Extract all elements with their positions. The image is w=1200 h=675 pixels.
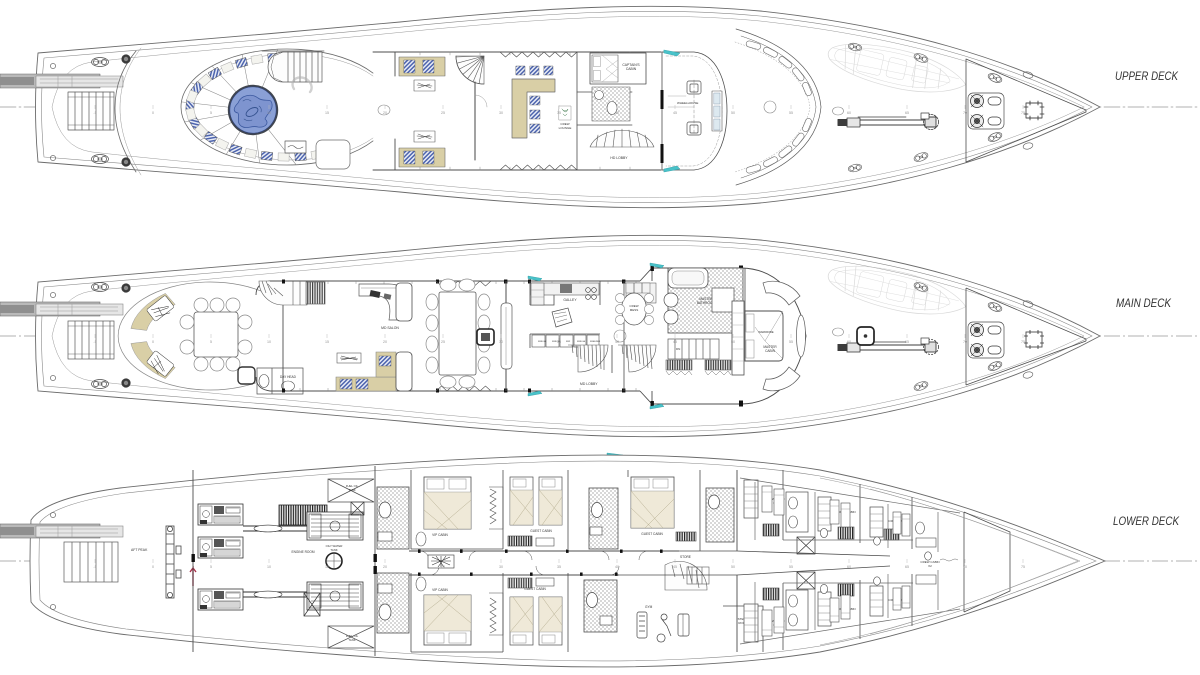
svg-text:WHEELHOUSE: WHEELHOUSE bbox=[677, 101, 698, 105]
svg-text:CABIN: CABIN bbox=[626, 67, 637, 71]
svg-text:50: 50 bbox=[731, 565, 735, 569]
svg-text:55: 55 bbox=[789, 565, 793, 569]
svg-text:10: 10 bbox=[267, 111, 271, 115]
svg-text:-5: -5 bbox=[93, 340, 96, 344]
svg-text:50: 50 bbox=[731, 111, 735, 115]
svg-text:VIP CABIN: VIP CABIN bbox=[432, 588, 448, 592]
svg-text:VIP CABIN: VIP CABIN bbox=[432, 533, 448, 537]
svg-text:35: 35 bbox=[557, 340, 561, 344]
svg-text:25: 25 bbox=[441, 340, 445, 344]
svg-text:45: 45 bbox=[673, 565, 677, 569]
svg-text:60: 60 bbox=[847, 340, 851, 344]
svg-text:FRZ: FRZ bbox=[566, 341, 571, 343]
svg-text:MD LOBBY: MD LOBBY bbox=[580, 382, 598, 386]
svg-text:LOWER DECK: LOWER DECK bbox=[1113, 514, 1180, 528]
svg-text:STORE: STORE bbox=[680, 555, 691, 559]
svg-text:30: 30 bbox=[499, 111, 503, 115]
svg-text:X2: X2 bbox=[928, 564, 932, 568]
svg-text:LOUNGE: LOUNGE bbox=[559, 126, 572, 130]
svg-text:25: 25 bbox=[441, 565, 445, 569]
svg-text:0: 0 bbox=[152, 111, 154, 115]
svg-text:70: 70 bbox=[963, 340, 967, 344]
svg-text:70: 70 bbox=[963, 565, 967, 569]
svg-text:TANK: TANK bbox=[348, 488, 355, 492]
svg-text:10: 10 bbox=[267, 340, 271, 344]
svg-text:MESS: MESS bbox=[630, 308, 639, 312]
svg-text:45: 45 bbox=[673, 111, 677, 115]
svg-text:35: 35 bbox=[557, 565, 561, 569]
svg-text:0: 0 bbox=[152, 340, 154, 344]
svg-text:75: 75 bbox=[1021, 111, 1025, 115]
svg-text:GUEST CABIN: GUEST CABIN bbox=[530, 529, 552, 533]
svg-text:60: 60 bbox=[847, 111, 851, 115]
svg-text:UPPER DECK: UPPER DECK bbox=[1115, 69, 1179, 83]
svg-text:65: 65 bbox=[905, 565, 909, 569]
svg-text:40: 40 bbox=[615, 565, 619, 569]
svg-text:30: 30 bbox=[499, 340, 503, 344]
svg-text:60: 60 bbox=[847, 565, 851, 569]
svg-text:0: 0 bbox=[152, 565, 154, 569]
svg-text:AFT PEAK: AFT PEAK bbox=[131, 548, 148, 552]
svg-text:25: 25 bbox=[441, 111, 445, 115]
svg-text:TANK: TANK bbox=[330, 548, 337, 552]
svg-text:FREEZER: FREEZER bbox=[590, 341, 601, 343]
svg-text:-5: -5 bbox=[93, 111, 96, 115]
svg-text:FRIDGE: FRIDGE bbox=[577, 341, 586, 343]
svg-text:20: 20 bbox=[383, 111, 387, 115]
svg-text:15: 15 bbox=[325, 565, 329, 569]
svg-text:DAY HEAD: DAY HEAD bbox=[280, 375, 297, 379]
svg-text:HD LOBBY: HD LOBBY bbox=[610, 156, 628, 160]
svg-text:FRIDGE: FRIDGE bbox=[538, 341, 547, 343]
svg-text:5: 5 bbox=[210, 111, 212, 115]
svg-text:30: 30 bbox=[499, 565, 503, 569]
svg-text:75: 75 bbox=[1021, 565, 1025, 569]
svg-text:65: 65 bbox=[905, 111, 909, 115]
svg-text:GYM: GYM bbox=[645, 605, 653, 609]
svg-text:55: 55 bbox=[789, 111, 793, 115]
svg-text:20: 20 bbox=[383, 340, 387, 344]
svg-text:DN: DN bbox=[676, 347, 680, 351]
svg-text:5: 5 bbox=[210, 565, 212, 569]
svg-text:GALLEY: GALLEY bbox=[563, 298, 577, 302]
svg-text:5: 5 bbox=[210, 340, 212, 344]
svg-text:55: 55 bbox=[789, 340, 793, 344]
svg-text:CABIN: CABIN bbox=[765, 349, 775, 353]
svg-text:75: 75 bbox=[1021, 340, 1025, 344]
svg-text:40: 40 bbox=[615, 111, 619, 115]
svg-text:20: 20 bbox=[383, 565, 387, 569]
svg-text:70: 70 bbox=[963, 111, 967, 115]
svg-text:WARDROBE: WARDROBE bbox=[758, 330, 773, 334]
svg-text:15: 15 bbox=[325, 340, 329, 344]
svg-text:15: 15 bbox=[325, 111, 329, 115]
svg-text:50: 50 bbox=[731, 340, 735, 344]
svg-text:TANK: TANK bbox=[348, 638, 355, 642]
svg-text:-5: -5 bbox=[93, 565, 96, 569]
svg-text:65: 65 bbox=[905, 340, 909, 344]
svg-text:10: 10 bbox=[267, 565, 271, 569]
svg-text:MD SALON: MD SALON bbox=[381, 326, 399, 330]
svg-text:GUEST CABIN: GUEST CABIN bbox=[641, 532, 663, 536]
svg-text:35: 35 bbox=[557, 111, 561, 115]
svg-text:MAIN DECK: MAIN DECK bbox=[1116, 296, 1172, 310]
svg-text:ENGINE ROOM: ENGINE ROOM bbox=[291, 550, 314, 554]
svg-text:40: 40 bbox=[615, 340, 619, 344]
svg-text:45: 45 bbox=[673, 340, 677, 344]
